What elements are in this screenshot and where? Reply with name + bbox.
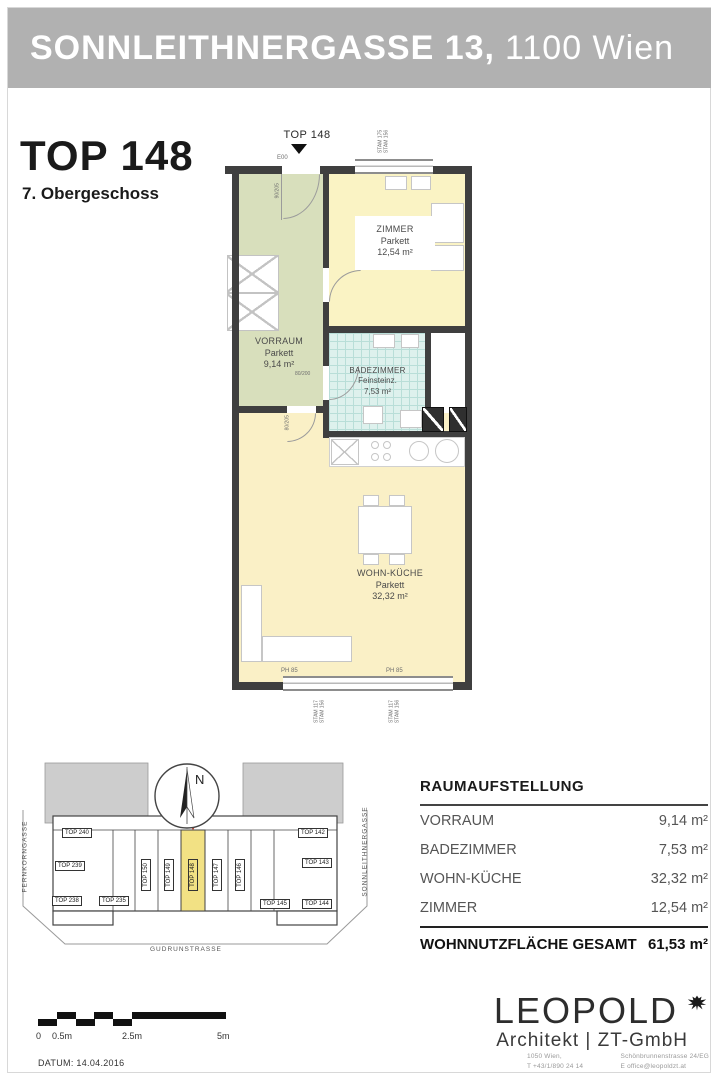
row-name: ZIMMER <box>420 900 477 916</box>
site-unit-label: TOP 150 <box>141 859 151 891</box>
street-label-left: FERNKORNGASSE <box>22 817 29 897</box>
table-row: BADEZIMMER 7,53 m² <box>420 835 708 864</box>
contact-left: 1050 Wien, T +43/1/890 24 14 <box>527 1052 583 1073</box>
room-finish: Feinsteinz. <box>335 376 420 386</box>
shaft <box>422 407 444 432</box>
chair <box>363 495 379 506</box>
site-unit-label: TOP 239 <box>55 861 85 871</box>
table-row: ZIMMER 12,54 m² <box>420 893 708 922</box>
window-bottom-right <box>357 676 453 691</box>
page-title: TOP 148 <box>20 132 194 180</box>
shaft <box>449 407 467 432</box>
wall <box>232 166 239 690</box>
sofa <box>241 585 262 662</box>
room-area: 32,32 m² <box>340 591 440 603</box>
floor-plan: TOP 148 E00 90/205 80/200 80/205 PH 85 P… <box>225 128 477 730</box>
site-unit-label: TOP 144 <box>302 899 332 909</box>
compass-north-label: N <box>195 772 204 787</box>
scale-label: 0.5m <box>52 1031 72 1041</box>
entrance-opening <box>282 166 320 174</box>
date-label: DATUM: 14.04.2016 <box>38 1058 124 1068</box>
contact-block: 1050 Wien, T +43/1/890 24 14 Schönbrunne… <box>527 1052 709 1073</box>
wohnkueche-label: WOHN-KÜCHE Parkett 32,32 m² <box>340 568 440 603</box>
room-name: ZIMMER <box>355 224 435 236</box>
sofa <box>262 636 352 662</box>
ph-label-bottom-left: PH 85 <box>281 668 298 675</box>
header-address-light: 1100 Wien <box>505 29 674 68</box>
bath-sink <box>373 334 395 348</box>
room-finish: Parkett <box>355 236 435 248</box>
street-label-bottom: GUDRUNSTRASSE <box>150 946 222 953</box>
site-unit-label: TOP 146 <box>235 859 245 891</box>
scale-segment <box>94 1012 113 1019</box>
chair <box>389 495 405 506</box>
brand-subtitle: Architekt | ZT-GmbH <box>420 1030 688 1052</box>
chair <box>363 554 379 565</box>
table-total-row: WOHNNUTZFLÄCHE GESAMT 61,53 m² <box>420 928 708 953</box>
eagle-icon <box>686 993 708 1013</box>
dining-table <box>358 506 412 554</box>
scale-label: 5m <box>217 1031 230 1041</box>
room-name: WOHN-KÜCHE <box>340 568 440 580</box>
header-address-bar: SONNLEITHNERGASSE 13, 1100 Wien <box>8 8 711 88</box>
furniture <box>431 203 464 243</box>
row-name: WOHN-KÜCHE <box>420 871 522 887</box>
ph-label-bottom-right: PH 85 <box>386 668 403 675</box>
pointer-triangle-icon <box>291 144 307 154</box>
contact-phone: T +43/1/890 24 14 <box>527 1062 583 1072</box>
row-area: 12,54 m² <box>651 900 708 916</box>
badezimmer-label: BADEZIMMER Feinsteinz. 7,53 m² <box>335 366 420 397</box>
bath-fixture <box>400 410 422 428</box>
stam-line: STAM 156 <box>394 700 400 723</box>
site-unit-label: TOP 235 <box>99 896 129 906</box>
window-bottom-left <box>283 676 357 691</box>
window-top-stam-label: STAM 175 STAM 156 <box>379 122 390 162</box>
site-unit-label: TOP 143 <box>302 858 332 868</box>
scale-label: 2.5m <box>122 1031 142 1041</box>
chair <box>389 554 405 565</box>
row-area: 32,32 m² <box>651 871 708 887</box>
row-name: BADEZIMMER <box>420 842 517 858</box>
room-area: 7,53 m² <box>335 387 420 397</box>
contact-email: E office@leopoldzt.at <box>621 1062 709 1072</box>
site-unit-label: TOP 147 <box>212 859 222 891</box>
stove-burner <box>383 453 391 461</box>
wall <box>232 406 287 413</box>
window-bottom-right-stam-label: STAM 117 STAM 156 <box>390 692 401 732</box>
street-label-right: SONNLEITHNERGASSE <box>362 797 369 907</box>
kitchen-appliance <box>409 441 429 461</box>
plan-unit-pointer-label: TOP 148 <box>275 129 339 141</box>
wall <box>323 326 472 333</box>
contact-right: Schönbrunnenstrasse 24/EG E office@leopo… <box>621 1052 709 1073</box>
table-row: VORRAUM 9,14 m² <box>420 806 708 835</box>
wall <box>225 166 472 174</box>
site-unit-label: TOP 142 <box>298 828 328 838</box>
floor-subtitle: 7. Obergeschoss <box>22 184 159 204</box>
entrance-door-size: 90/205 <box>275 178 281 204</box>
room-area: 9,14 m² <box>237 359 321 371</box>
scale-segment <box>57 1012 76 1019</box>
toilet <box>363 406 383 424</box>
architect-brand-row: LEOPOLD <box>420 993 708 1029</box>
bath-sink <box>401 334 419 348</box>
stove-burner <box>371 441 379 449</box>
room-area: 12,54 m² <box>355 247 435 259</box>
brand-name: LEOPOLD <box>494 993 678 1029</box>
site-unit-label: TOP 238 <box>52 896 82 906</box>
kitchen-appliance <box>435 439 459 463</box>
zimmer-label: ZIMMER Parkett 12,54 m² <box>355 216 435 270</box>
living-door-size: 80/205 <box>285 410 291 436</box>
furniture <box>411 176 431 190</box>
kitchen-sink <box>331 439 359 465</box>
window-bottom-left-stam-label: STAM 117 STAM 156 <box>315 692 326 732</box>
table-title: RAUMAUFSTELLUNG <box>420 778 708 795</box>
total-name: WOHNNUTZFLÄCHE GESAMT <box>420 936 637 953</box>
site-unit-label: TOP 145 <box>260 899 290 909</box>
stove-burner <box>371 453 379 461</box>
scale-segment <box>132 1012 226 1019</box>
contact-street: Schönbrunnenstrasse 24/EG <box>621 1052 709 1062</box>
furniture <box>385 176 407 190</box>
compass-icon: N <box>155 764 219 828</box>
site-unit-label: TOP 240 <box>62 828 92 838</box>
scale-label: 0 <box>36 1031 41 1041</box>
bath-door-size: 80/200 <box>295 372 310 378</box>
room-finish: Parkett <box>340 580 440 592</box>
row-area: 9,14 m² <box>659 813 708 829</box>
table-row: WOHN-KÜCHE 32,32 m² <box>420 864 708 893</box>
stam-line: STAM 156 <box>383 130 389 153</box>
room-summary-table: RAUMAUFSTELLUNG VORRAUM 9,14 m² BADEZIMM… <box>420 778 708 953</box>
row-area: 7,53 m² <box>659 842 708 858</box>
scale-segment <box>38 1019 57 1026</box>
furniture <box>431 245 464 271</box>
room-niche <box>431 333 465 406</box>
entrance-label: E00 <box>277 155 288 162</box>
total-area: 61,53 m² <box>648 936 708 953</box>
room-finish: Parkett <box>237 348 321 360</box>
row-name: VORRAUM <box>420 813 494 829</box>
site-unit-label: TOP 149 <box>164 859 174 891</box>
site-unit-label-highlighted: TOP 148 <box>188 859 198 891</box>
stove-burner <box>383 441 391 449</box>
contact-city: 1050 Wien, <box>527 1052 583 1062</box>
room-name: VORRAUM <box>237 336 321 348</box>
wall <box>316 406 323 413</box>
window-top <box>355 159 433 174</box>
site-plan: N TOP 240 TOP 239 TOP 238 TOP 235 TOP 15… <box>15 758 375 968</box>
entrance-door-leaf <box>281 174 282 220</box>
stam-line: STAM 156 <box>319 700 325 723</box>
zimmer-door-opening <box>323 268 329 302</box>
vorraum-label: VORRAUM Parkett 9,14 m² <box>237 336 321 371</box>
scale-segment <box>76 1019 95 1026</box>
scale-segment <box>113 1019 132 1026</box>
room-name: BADEZIMMER <box>335 366 420 376</box>
header-address-bold: SONNLEITHNERGASSE 13, <box>30 29 495 68</box>
